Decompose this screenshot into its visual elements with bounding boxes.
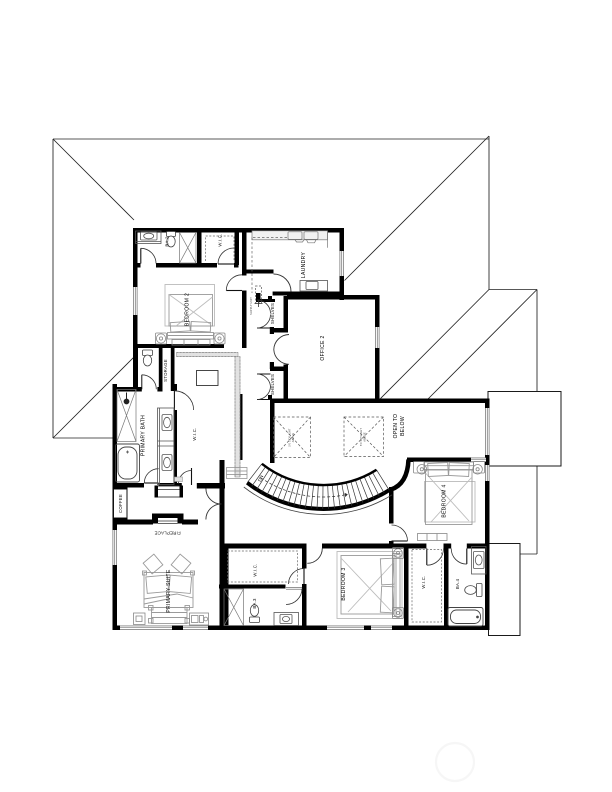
svg-text:SUPPLY UNIT: SUPPLY UNIT [249,297,253,315]
svg-text:BEDROOM 2: BEDROOM 2 [185,293,191,326]
svg-text:5'0 SKYLIGHT: 5'0 SKYLIGHT [288,428,292,446]
svg-text:PRIMARY SUITE: PRIMARY SUITE [166,569,172,613]
svg-text:W.I.C.: W.I.C. [253,563,258,576]
svg-text:LAUNDRY: LAUNDRY [301,252,307,279]
svg-text:BA.4: BA.4 [455,578,460,589]
svg-text:SHELVES: SHELVES [270,374,275,395]
svg-text:BEDROOM 3: BEDROOM 3 [341,567,347,600]
svg-text:SHELVES: SHELVES [270,303,275,324]
svg-text:OFFICE 2: OFFICE 2 [320,335,326,360]
svg-text:FIREPLACE: FIREPLACE [154,531,180,536]
svg-text:W.I.C.: W.I.C. [192,427,197,440]
svg-text:W.I.C.: W.I.C. [218,233,223,246]
svg-text:W.I.C.: W.I.C. [421,575,426,588]
svg-text:5'0 SKYLIGHT: 5'0 SKYLIGHT [359,428,363,446]
svg-text:STORAGE: STORAGE [163,359,168,382]
svg-text:BA.2: BA.2 [165,236,170,247]
svg-text:OPEN TO: OPEN TO [393,414,399,439]
svg-text:BELOW: BELOW [400,416,406,436]
svg-text:ABOVE: ABOVE [291,433,295,443]
svg-text:COFFEE: COFFEE [118,494,123,513]
svg-text:BEDROOM 4: BEDROOM 4 [442,484,448,517]
svg-text:BA.3: BA.3 [252,598,257,609]
svg-text:ABOVE: ABOVE [363,432,367,442]
svg-text:PRIMARY BATH: PRIMARY BATH [141,415,147,456]
